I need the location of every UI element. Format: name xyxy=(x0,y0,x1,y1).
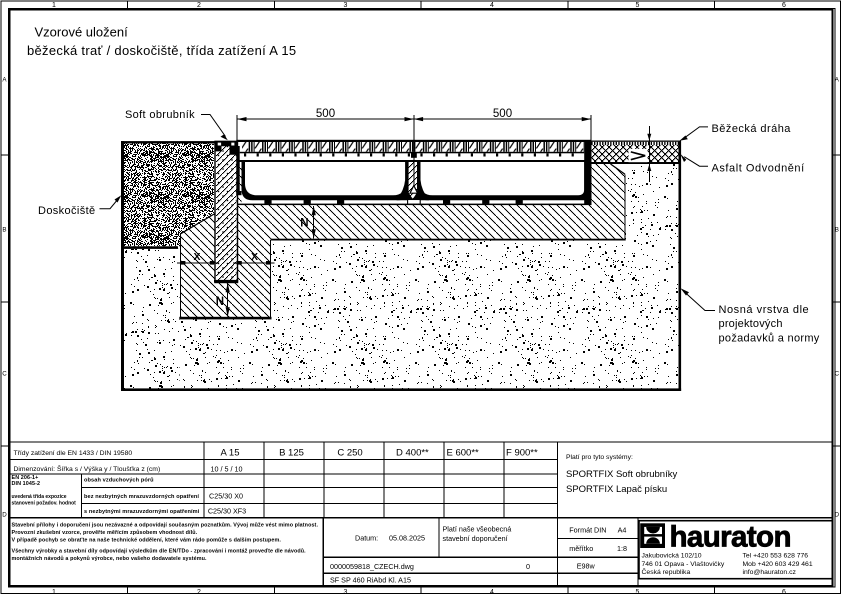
svg-text:Platí pro tyto systémy:: Platí pro tyto systémy: xyxy=(566,454,633,461)
svg-text:SF SP 460 RiAbd Kl. A15: SF SP 460 RiAbd Kl. A15 xyxy=(330,575,411,584)
svg-text:Formát DIN: Formát DIN xyxy=(569,525,606,534)
svg-text:Tel +420 553 628 776: Tel +420 553 628 776 xyxy=(743,552,809,559)
svg-text:B: B xyxy=(2,227,6,234)
svg-text:V případě pochyb se obraťte na: V případě pochyb se obraťte na naše tech… xyxy=(12,537,282,544)
svg-text:746 01 Opava - Vlaštovičky: 746 01 Opava - Vlaštovičky xyxy=(642,561,725,568)
svg-text:05.08.2025: 05.08.2025 xyxy=(389,533,425,542)
svg-text:měřítko: měřítko xyxy=(569,544,593,553)
svg-text:Třídy zatížení dle EN 1433 / D: Třídy zatížení dle EN 1433 / DIN 19580 xyxy=(14,450,133,457)
svg-text:Všechny výrobky a stavební díl: Všechny výrobky a stavební díly odpovída… xyxy=(12,548,307,555)
svg-text:X: X xyxy=(251,251,258,263)
svg-text:Asfalt Odvodnění: Asfalt Odvodnění xyxy=(712,163,805,175)
svg-text:Mob +420 603 429 461: Mob +420 603 429 461 xyxy=(743,561,813,568)
svg-text:Soft obrubník: Soft obrubník xyxy=(125,109,195,121)
svg-text:DIN 1045-2: DIN 1045-2 xyxy=(12,481,41,487)
svg-text:C 250: C 250 xyxy=(337,447,362,458)
svg-text:hauraton: hauraton xyxy=(670,521,791,554)
svg-text:Běžecká dráha: Běžecká dráha xyxy=(712,123,792,135)
svg-text:D 400**: D 400** xyxy=(396,447,429,458)
svg-text:C25/30 XF3: C25/30 XF3 xyxy=(208,507,246,516)
svg-text:C: C xyxy=(2,371,7,378)
svg-text:D: D xyxy=(2,512,7,519)
svg-text:stanovení požadov. hodnot: stanovení požadov. hodnot xyxy=(12,501,77,507)
svg-text:Česká republika: Česká republika xyxy=(642,567,691,576)
svg-text:montážních návodů a pokynů výr: montážních návodů a pokynů výrobce, nebo… xyxy=(12,555,208,562)
svg-text:Stavební přílohy i doporučení: Stavební přílohy i doporučení jsou nezáv… xyxy=(12,522,319,529)
svg-text:stavební doporučení: stavební doporučení xyxy=(443,534,508,543)
svg-text:F 900**: F 900** xyxy=(506,447,538,458)
svg-text:SPORTFIX Soft obrubníky: SPORTFIX Soft obrubníky xyxy=(566,469,677,480)
svg-text:info@hauraton.cz: info@hauraton.cz xyxy=(743,569,797,576)
svg-text:bez nezbytných mrazuvzdorných: bez nezbytných mrazuvzdorných opatření xyxy=(84,494,199,500)
svg-text:4: 4 xyxy=(490,589,494,595)
svg-text:0000059818_CZECH.dwg: 0000059818_CZECH.dwg xyxy=(330,562,414,571)
svg-text:C25/30 X0: C25/30 X0 xyxy=(209,491,243,500)
svg-text:2: 2 xyxy=(197,589,201,595)
svg-text:C: C xyxy=(835,371,840,378)
svg-text:projektových: projektových xyxy=(719,318,783,330)
svg-text:6: 6 xyxy=(782,589,786,595)
svg-text:3: 3 xyxy=(344,589,348,595)
svg-text:SPORTFIX Lapač písku: SPORTFIX Lapač písku xyxy=(566,484,667,495)
svg-text:E98w: E98w xyxy=(577,562,596,571)
svg-text:A 15: A 15 xyxy=(220,447,239,458)
svg-text:běžecká trať / doskočiště, tří: běžecká trať / doskočiště, třída zatížen… xyxy=(27,43,296,58)
svg-text:Doskočiště: Doskočiště xyxy=(38,205,96,217)
svg-text:Dimenzování: Šířka s / Výška: Dimenzování: Šířka s / Výška y / Tloušťk… xyxy=(14,464,161,473)
svg-text:5: 5 xyxy=(636,589,640,595)
svg-text:N: N xyxy=(300,218,308,230)
svg-text:uvedená třída expozice: uvedená třída expozice xyxy=(12,494,67,500)
svg-text:10 / 5 / 10: 10 / 5 / 10 xyxy=(211,465,243,474)
svg-text:E 600**: E 600** xyxy=(447,447,480,458)
svg-text:1:8: 1:8 xyxy=(617,544,627,553)
svg-text:Datum:: Datum: xyxy=(355,533,378,542)
svg-text:N: N xyxy=(216,296,224,308)
svg-text:B 125: B 125 xyxy=(279,447,304,458)
svg-text:0: 0 xyxy=(526,562,530,571)
svg-text:1: 1 xyxy=(52,589,56,595)
svg-text:X: X xyxy=(193,251,200,263)
svg-text:A4: A4 xyxy=(618,525,627,534)
svg-text:požadavků a normy: požadavků a normy xyxy=(719,332,820,344)
svg-text:B: B xyxy=(835,227,839,234)
svg-text:D: D xyxy=(835,512,840,519)
svg-text:500: 500 xyxy=(493,108,512,120)
svg-text:obsah vzduchových pórů: obsah vzduchových pórů xyxy=(84,477,154,484)
svg-text:Provozní zkušební vzorce, prov: Provozní zkušební vzorce, prověřte měříc… xyxy=(12,529,198,536)
svg-text:Platí naše všeobecná: Platí naše všeobecná xyxy=(443,524,512,533)
svg-text:500: 500 xyxy=(316,108,335,120)
svg-text:Nosná vrstva dle: Nosná vrstva dle xyxy=(719,304,810,316)
svg-text:Vzorové uložení: Vzorové uložení xyxy=(35,24,129,39)
svg-text:Jakubovická 102/10: Jakubovická 102/10 xyxy=(642,552,702,559)
svg-text:s nezbytnými mrazuvzdornými op: s nezbytnými mrazuvzdornými opatřeními xyxy=(84,509,200,515)
